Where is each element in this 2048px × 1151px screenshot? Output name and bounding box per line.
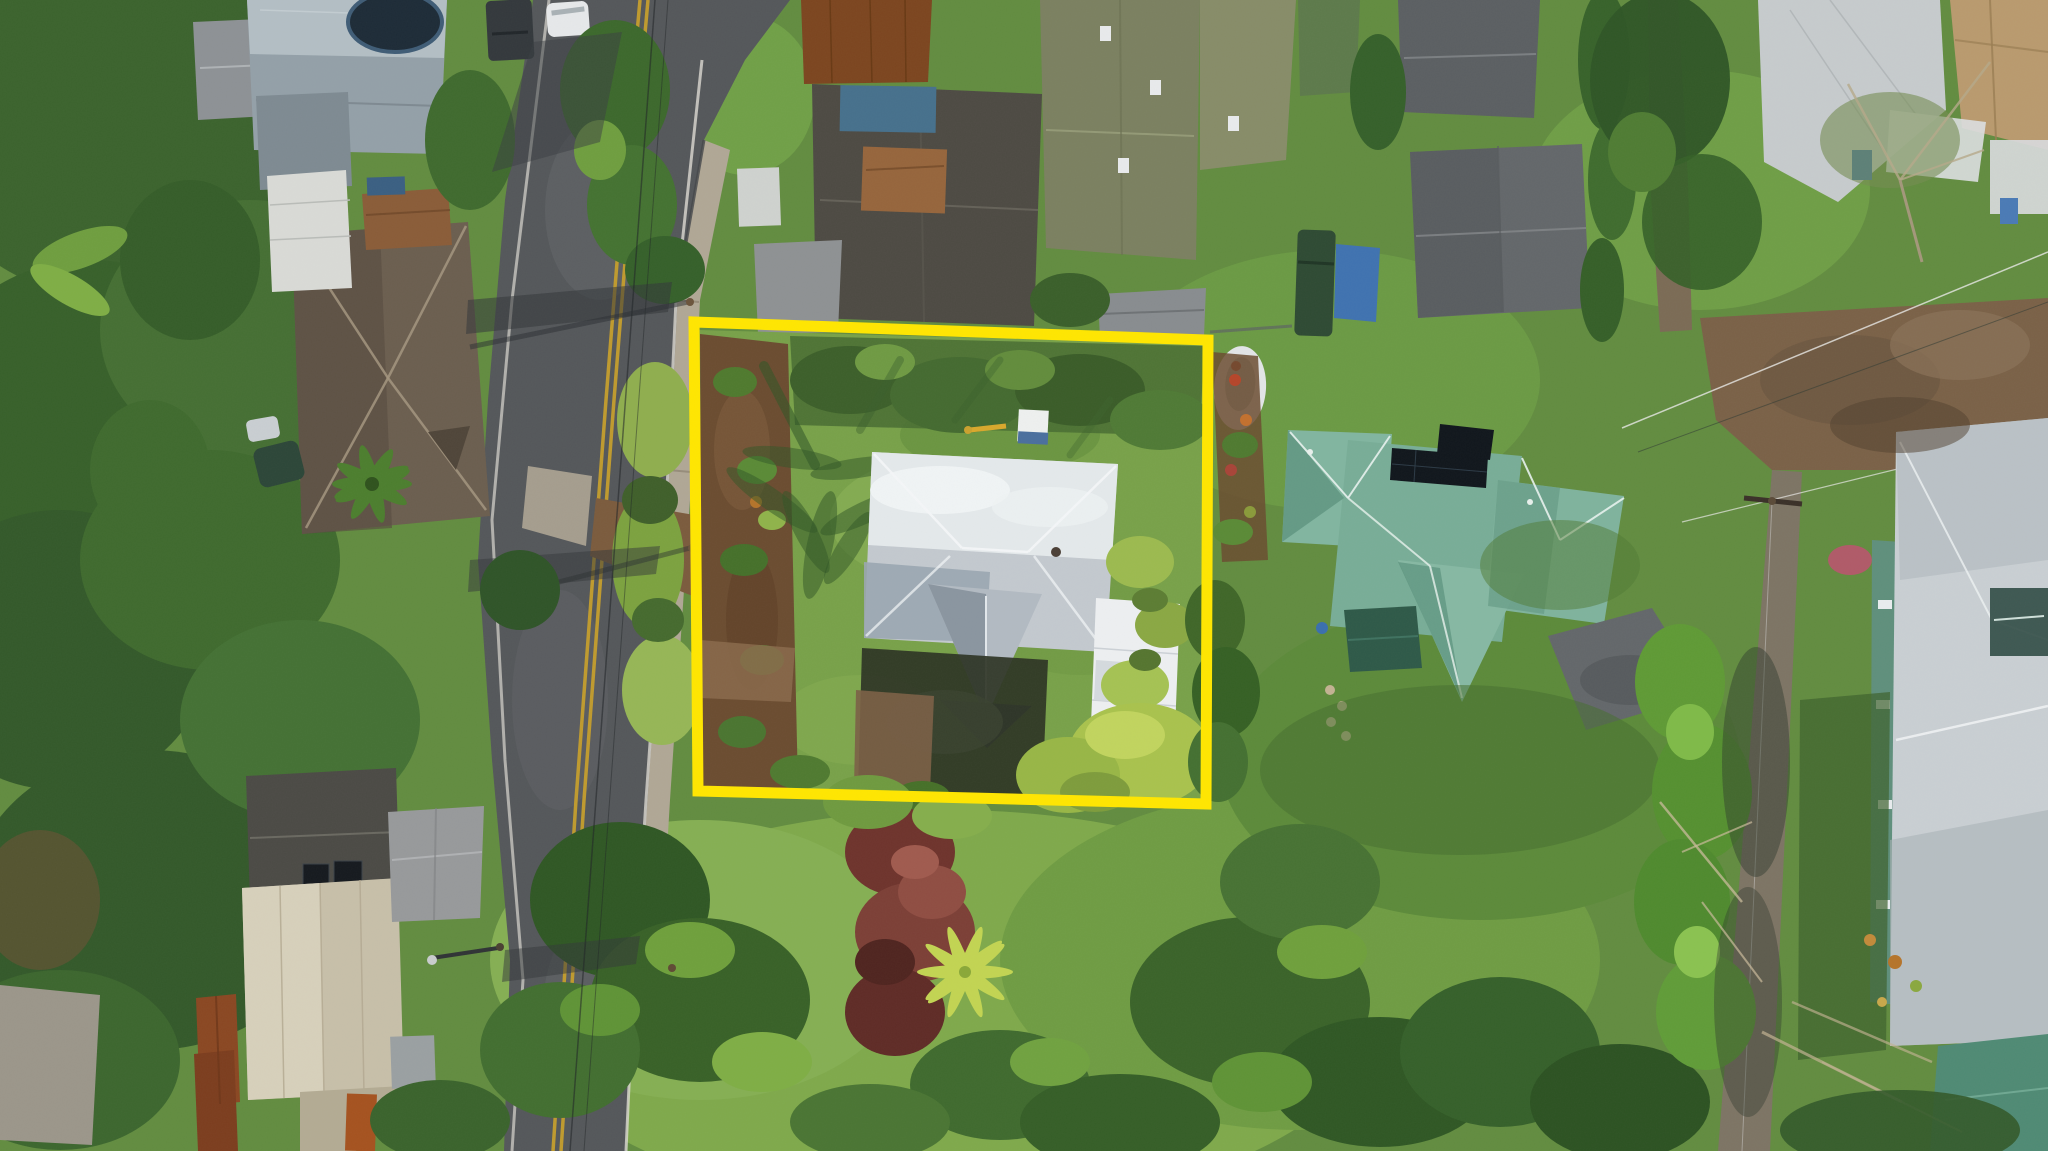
roof-vent <box>1527 499 1533 505</box>
tree-canopy-light <box>645 922 735 978</box>
skylight <box>1150 80 1161 95</box>
dragonfruit-plants <box>1106 536 1174 588</box>
street-light-head <box>427 955 437 965</box>
boundary-bushes <box>1185 580 1245 660</box>
flower <box>1240 414 1252 426</box>
shed-blue-wall <box>1018 431 1049 445</box>
aerial-photo-svg <box>0 0 2048 1151</box>
boundary-bushes <box>1188 722 1248 802</box>
garden-accent <box>1910 980 1922 992</box>
dirt-pad <box>700 640 795 702</box>
hedge-row <box>1580 238 1624 342</box>
utility-pole <box>1768 497 1776 505</box>
rust-metal-shed <box>194 1050 238 1151</box>
tree-canopy-light <box>560 984 640 1036</box>
lane-shade <box>1714 887 1782 1117</box>
white-canopy <box>1990 140 2048 214</box>
garden-shrub <box>718 716 766 748</box>
plant-shade <box>1132 588 1168 612</box>
play-structure-post <box>964 426 972 434</box>
garden-shrub <box>720 544 768 576</box>
tree-canopy <box>120 180 260 340</box>
blue-tarp <box>2000 198 2018 224</box>
utility-pole <box>668 964 676 972</box>
flower <box>1229 374 1241 386</box>
skylight <box>1118 158 1129 173</box>
tree-canopy-light <box>1212 1052 1312 1112</box>
corrugation-line <box>905 0 906 82</box>
wood-deck <box>861 147 947 214</box>
tree-canopy <box>425 70 515 210</box>
flower <box>1244 506 1256 518</box>
plant-shade <box>632 598 684 642</box>
tree-canopy-light <box>1277 925 1367 979</box>
utility-pole <box>496 943 504 951</box>
tree-canopy <box>855 344 915 380</box>
blue-tarp <box>1334 244 1380 322</box>
tree-canopy <box>90 400 210 540</box>
palm-center <box>959 966 971 978</box>
pickup-cab-line <box>1298 262 1334 264</box>
garden-shrub <box>1213 519 1253 545</box>
skylight <box>1228 116 1239 131</box>
lane-shade <box>1722 647 1790 877</box>
red-maple-light <box>891 845 939 879</box>
tree-canopy <box>1350 34 1406 150</box>
tree-canopy-light <box>712 1032 812 1092</box>
tree-canopy-light <box>1608 112 1676 192</box>
utility-pole <box>686 298 694 306</box>
aerial-photo <box>0 0 2048 1151</box>
roof-highlight <box>992 487 1108 527</box>
flower <box>1225 464 1237 476</box>
rooftop-solar-panel <box>367 176 406 195</box>
rust-corrugated-shed <box>801 0 932 84</box>
hedge-highlight <box>1666 704 1714 760</box>
garden-shrub <box>713 367 757 397</box>
bare-tree-foliage <box>1820 92 1960 188</box>
garden-accent <box>1877 997 1887 1007</box>
palm-center <box>365 477 379 491</box>
dirt-mottle <box>1890 310 2030 380</box>
tree-canopy <box>1030 273 1110 327</box>
banana-plants <box>622 635 702 745</box>
tree-canopy <box>1220 824 1380 940</box>
blue-roof-structure <box>840 85 937 133</box>
window <box>1878 600 1892 609</box>
concrete-pad <box>0 985 100 1145</box>
garden-accent <box>1888 955 1902 969</box>
wood-deck <box>362 188 452 250</box>
roof-shade <box>1890 810 2048 1046</box>
house-shadow <box>1798 692 1890 1060</box>
red-maple-dark <box>855 939 915 985</box>
roof-vent <box>1307 449 1313 455</box>
tree-canopy <box>1110 390 1210 450</box>
tree-canopy-light <box>823 775 913 829</box>
garden-shrub <box>1222 432 1258 458</box>
garden-shrub <box>770 755 830 789</box>
white-car <box>546 1 590 38</box>
pink-flowering-bush <box>1828 545 1872 575</box>
lawn-shadow <box>1480 520 1640 610</box>
skylight <box>1100 26 1111 41</box>
green-pickup-truck <box>1294 229 1336 336</box>
dark-wall-recess <box>1990 588 2048 656</box>
stepping-stone <box>1325 685 1335 695</box>
chartreuse-tree-light <box>1085 711 1165 759</box>
olive-shingle-house-wing <box>1200 0 1296 170</box>
white-shed <box>737 167 781 226</box>
tree-canopy-light <box>1010 1038 1090 1086</box>
tree-canopy <box>480 550 560 630</box>
hedge-highlight <box>1674 926 1720 978</box>
white-metal-wing <box>267 170 352 292</box>
blue-barrel <box>1316 622 1328 634</box>
banana-plants <box>617 362 693 478</box>
chimney <box>1051 547 1061 557</box>
solar-array <box>1437 424 1494 460</box>
truck-bed-line <box>492 32 528 34</box>
darkgray-house-ne <box>1398 0 1540 118</box>
garden-accent <box>1864 934 1876 946</box>
plant-shade <box>1129 649 1161 671</box>
dirt-shadow <box>1830 397 1970 453</box>
